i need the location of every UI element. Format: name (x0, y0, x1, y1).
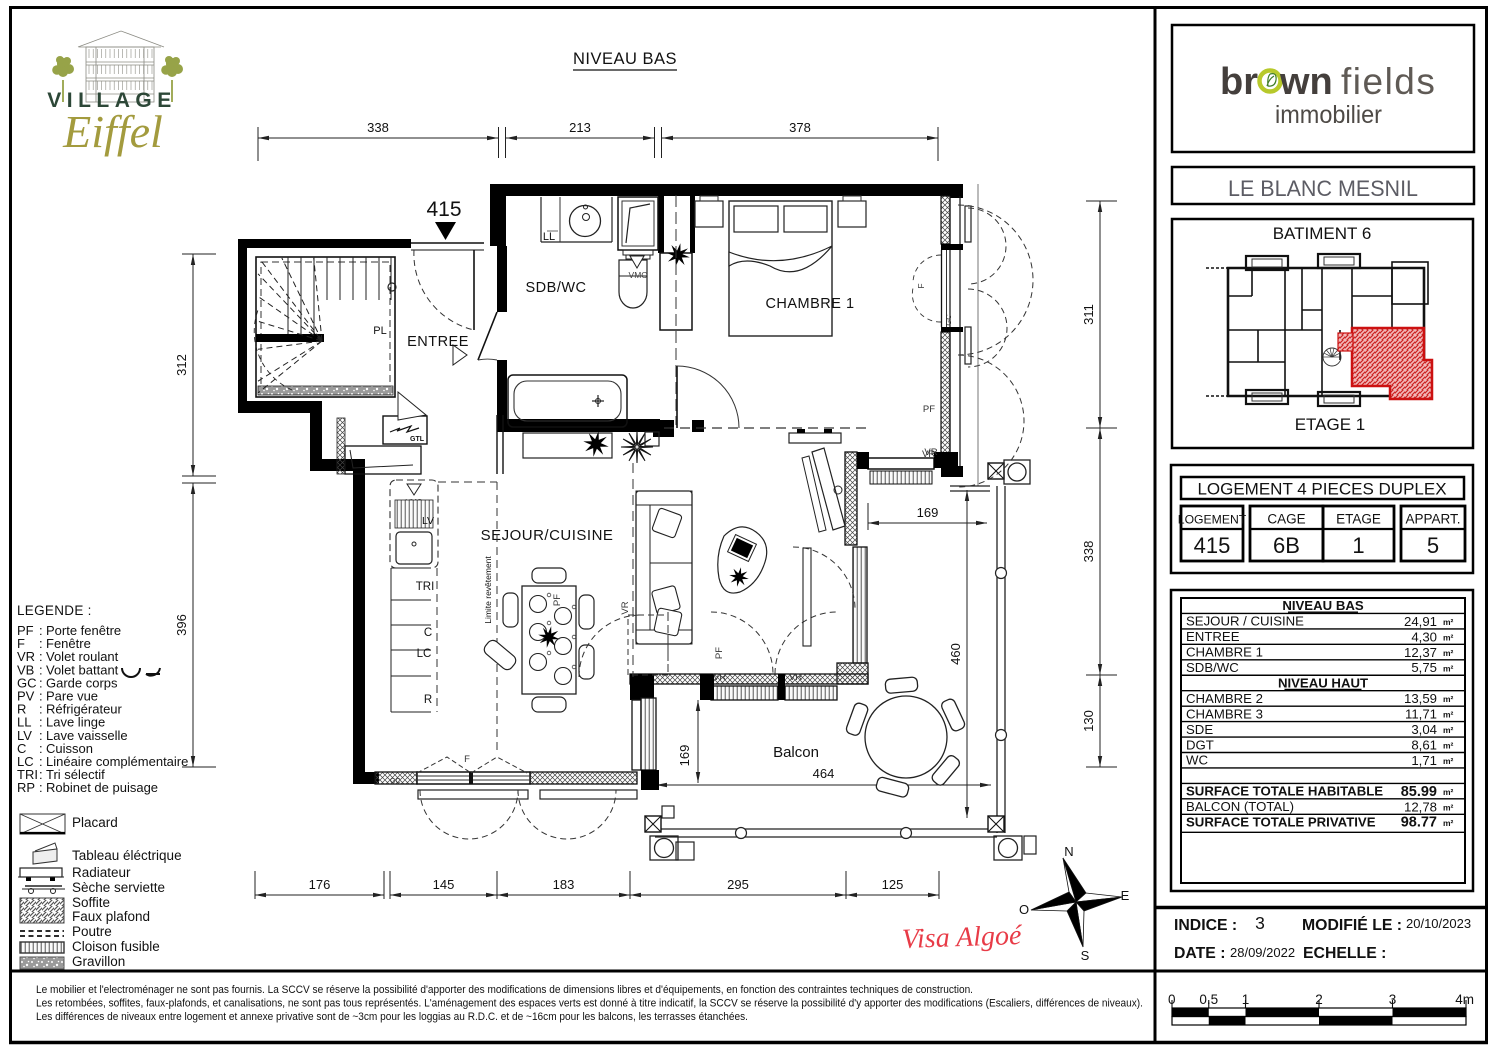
svg-text:CHAMBRE 1: CHAMBRE 1 (1186, 645, 1263, 660)
svg-text:BATIMENT 6: BATIMENT 6 (1273, 224, 1372, 243)
svg-text:CAGE: CAGE (1267, 512, 1305, 527)
svg-text:176: 176 (309, 877, 331, 892)
svg-text:LOGEMENT 4 PIECES DUPLEX: LOGEMENT 4 PIECES DUPLEX (1197, 480, 1446, 499)
svg-text:SEJOUR / CUISINE: SEJOUR / CUISINE (1186, 614, 1304, 629)
svg-text:13,59: 13,59 (1404, 691, 1437, 706)
svg-text:PF: PF (714, 647, 725, 659)
svg-text:338: 338 (1081, 541, 1096, 563)
svg-text:Les différences de niveaux ent: Les différences de niveaux entre logemen… (36, 1011, 748, 1023)
svg-text:20/10/2023: 20/10/2023 (1406, 916, 1471, 931)
svg-text:4,30: 4,30 (1411, 629, 1437, 644)
svg-text:ENTREE: ENTREE (407, 334, 469, 350)
svg-text:Robinet de puisage: Robinet de puisage (46, 780, 158, 795)
svg-text:Gravillon: Gravillon (72, 954, 125, 969)
svg-text:INDICE :: INDICE : (1174, 917, 1237, 934)
svg-text:m²: m² (1443, 648, 1454, 658)
svg-text:m²: m² (1443, 802, 1454, 812)
svg-text:LL: LL (543, 231, 555, 243)
svg-text:APPART.: APPART. (1405, 512, 1460, 527)
svg-text:GC: GC (944, 314, 953, 326)
svg-text:CHAMBRE 2: CHAMBRE 2 (1186, 691, 1263, 706)
svg-text::: : (39, 780, 43, 795)
svg-text:m²: m² (1443, 632, 1454, 642)
svg-text:CHAMBRE 1: CHAMBRE 1 (765, 296, 854, 312)
svg-text:VR: VR (789, 672, 802, 683)
svg-text:3: 3 (1255, 913, 1265, 933)
svg-text:m²: m² (1443, 741, 1454, 751)
svg-text:F: F (916, 283, 926, 288)
svg-text:LOGEMENT: LOGEMENT (1178, 513, 1247, 527)
svg-text:LC: LC (417, 648, 432, 660)
svg-text:Limite revêtement: Limite revêtement (483, 556, 493, 624)
svg-text:ENTREE: ENTREE (1186, 629, 1240, 644)
svg-text:SDE: SDE (1186, 722, 1213, 737)
svg-text:295: 295 (727, 877, 749, 892)
svg-text:m²: m² (1443, 694, 1454, 704)
svg-text:5,75: 5,75 (1411, 660, 1437, 675)
svg-text:LV: LV (422, 515, 434, 527)
svg-text:C: C (424, 627, 432, 639)
svg-text:PF: PF (923, 404, 935, 415)
svg-text:460: 460 (948, 643, 963, 665)
svg-text:m²: m² (1443, 663, 1454, 673)
svg-text:ECHELLE :: ECHELLE : (1303, 945, 1386, 962)
svg-text:TRI: TRI (416, 581, 435, 593)
svg-text:WC: WC (1186, 753, 1208, 768)
svg-text:SDB/WC: SDB/WC (1186, 660, 1239, 675)
svg-text:415: 415 (1194, 533, 1231, 558)
svg-text:415: 415 (426, 198, 461, 221)
svg-text:VR: VR (620, 601, 631, 614)
svg-text:213: 213 (569, 120, 591, 135)
svg-text:338: 338 (367, 120, 389, 135)
svg-text:R: R (424, 694, 432, 706)
svg-text:SEJOUR/CUISINE: SEJOUR/CUISINE (481, 527, 614, 544)
svg-text:BALCON (TOTAL): BALCON (TOTAL) (1186, 799, 1294, 814)
svg-text:Visa Algoé: Visa Algoé (901, 920, 1023, 955)
svg-text:fields: fields (1341, 61, 1436, 102)
svg-text:6B: 6B (1273, 533, 1300, 558)
svg-text:MODIFIÉ LE :: MODIFIÉ LE : (1302, 915, 1402, 934)
svg-text:RP: RP (17, 780, 35, 795)
svg-text:GTL: GTL (410, 436, 425, 443)
svg-text:Radiateur: Radiateur (72, 865, 131, 880)
svg-text:98.77: 98.77 (1401, 815, 1437, 831)
svg-text:11,71: 11,71 (1405, 707, 1437, 722)
svg-text:Les retombées, soffites, faux-: Les retombées, soffites, faux-plafonds, … (36, 998, 1143, 1010)
svg-text:Faux plafond: Faux plafond (72, 909, 150, 924)
svg-text:12,37: 12,37 (1404, 645, 1437, 660)
svg-text:NIVEAU HAUT: NIVEAU HAUT (1278, 675, 1368, 690)
svg-text:PL: PL (373, 325, 386, 337)
svg-text:312: 312 (174, 354, 189, 376)
svg-text:Sèche serviette: Sèche serviette (72, 880, 165, 895)
svg-text:Soffite: Soffite (72, 895, 110, 910)
svg-text:Le mobilier et l'electroménage: Le mobilier et l'electroménager ne sont … (36, 984, 973, 996)
svg-text:O: O (1019, 902, 1029, 917)
svg-text:Tableau éléctrique: Tableau éléctrique (72, 848, 182, 863)
svg-text:NIVEAU BAS: NIVEAU BAS (1282, 598, 1364, 613)
svg-text:F: F (464, 754, 470, 765)
svg-text:m²: m² (1443, 725, 1454, 735)
svg-text:VMC: VMC (629, 270, 648, 280)
svg-text:125: 125 (882, 877, 904, 892)
svg-text:1,71: 1,71 (1411, 753, 1437, 768)
svg-text:VR: VR (922, 449, 935, 460)
svg-text:LEGENDE :: LEGENDE : (17, 603, 92, 618)
svg-text:m²: m² (1443, 818, 1454, 828)
svg-text:24,91: 24,91 (1404, 614, 1437, 629)
svg-text:GC: GC (390, 778, 401, 785)
svg-text:Eiffel: Eiffel (62, 106, 163, 157)
svg-text:wn: wn (1279, 61, 1333, 103)
svg-text:1: 1 (1352, 533, 1364, 558)
svg-text:PF: PF (552, 594, 563, 606)
svg-text:LE BLANC MESNIL: LE BLANC MESNIL (1228, 176, 1418, 201)
svg-text:130: 130 (1081, 710, 1096, 732)
svg-text:145: 145 (433, 877, 455, 892)
svg-text:28/09/2022: 28/09/2022 (1230, 945, 1295, 960)
svg-text:DATE :: DATE : (1174, 945, 1225, 962)
svg-text:169: 169 (677, 745, 692, 767)
svg-text:m²: m² (1443, 756, 1454, 766)
svg-text:immobilier: immobilier (1275, 101, 1382, 129)
svg-text:ETAGE 1: ETAGE 1 (1295, 415, 1366, 434)
svg-text:183: 183 (553, 877, 575, 892)
svg-text:VR: VR (713, 672, 726, 683)
svg-text:378: 378 (789, 120, 811, 135)
svg-text:m²: m² (1443, 710, 1454, 720)
svg-text:Balcon: Balcon (773, 744, 819, 761)
svg-text:Placard: Placard (72, 815, 118, 830)
svg-text:396: 396 (174, 614, 189, 636)
svg-text:m²: m² (1443, 787, 1454, 797)
svg-text:DGT: DGT (1186, 737, 1214, 752)
svg-text:ETAGE: ETAGE (1336, 512, 1381, 527)
svg-text:SURFACE TOTALE PRIVATIVE: SURFACE TOTALE PRIVATIVE (1186, 815, 1376, 830)
svg-text:CHAMBRE 3: CHAMBRE 3 (1186, 706, 1263, 721)
svg-text:3,04: 3,04 (1411, 722, 1437, 737)
svg-text:N: N (1064, 844, 1073, 859)
svg-text:311: 311 (1081, 304, 1096, 325)
svg-text:S: S (1081, 948, 1090, 963)
svg-text:SDB/WC: SDB/WC (526, 280, 587, 296)
svg-text:m²: m² (1443, 617, 1454, 627)
svg-text:4m: 4m (1455, 992, 1474, 1007)
svg-text:8,61: 8,61 (1411, 737, 1437, 752)
svg-text:85.99: 85.99 (1401, 784, 1437, 800)
svg-text:Poutre: Poutre (72, 924, 112, 939)
svg-text:Cloison fusible: Cloison fusible (72, 939, 160, 954)
svg-text:169: 169 (917, 505, 939, 520)
svg-text:br: br (1220, 61, 1258, 103)
svg-text:E: E (1121, 888, 1130, 903)
svg-text:5: 5 (1427, 533, 1439, 558)
svg-text:NIVEAU BAS: NIVEAU BAS (573, 50, 677, 68)
svg-text:12,78: 12,78 (1404, 799, 1437, 814)
svg-text:SURFACE TOTALE HABITABLE: SURFACE TOTALE HABITABLE (1186, 784, 1383, 799)
svg-text:464: 464 (813, 766, 835, 781)
